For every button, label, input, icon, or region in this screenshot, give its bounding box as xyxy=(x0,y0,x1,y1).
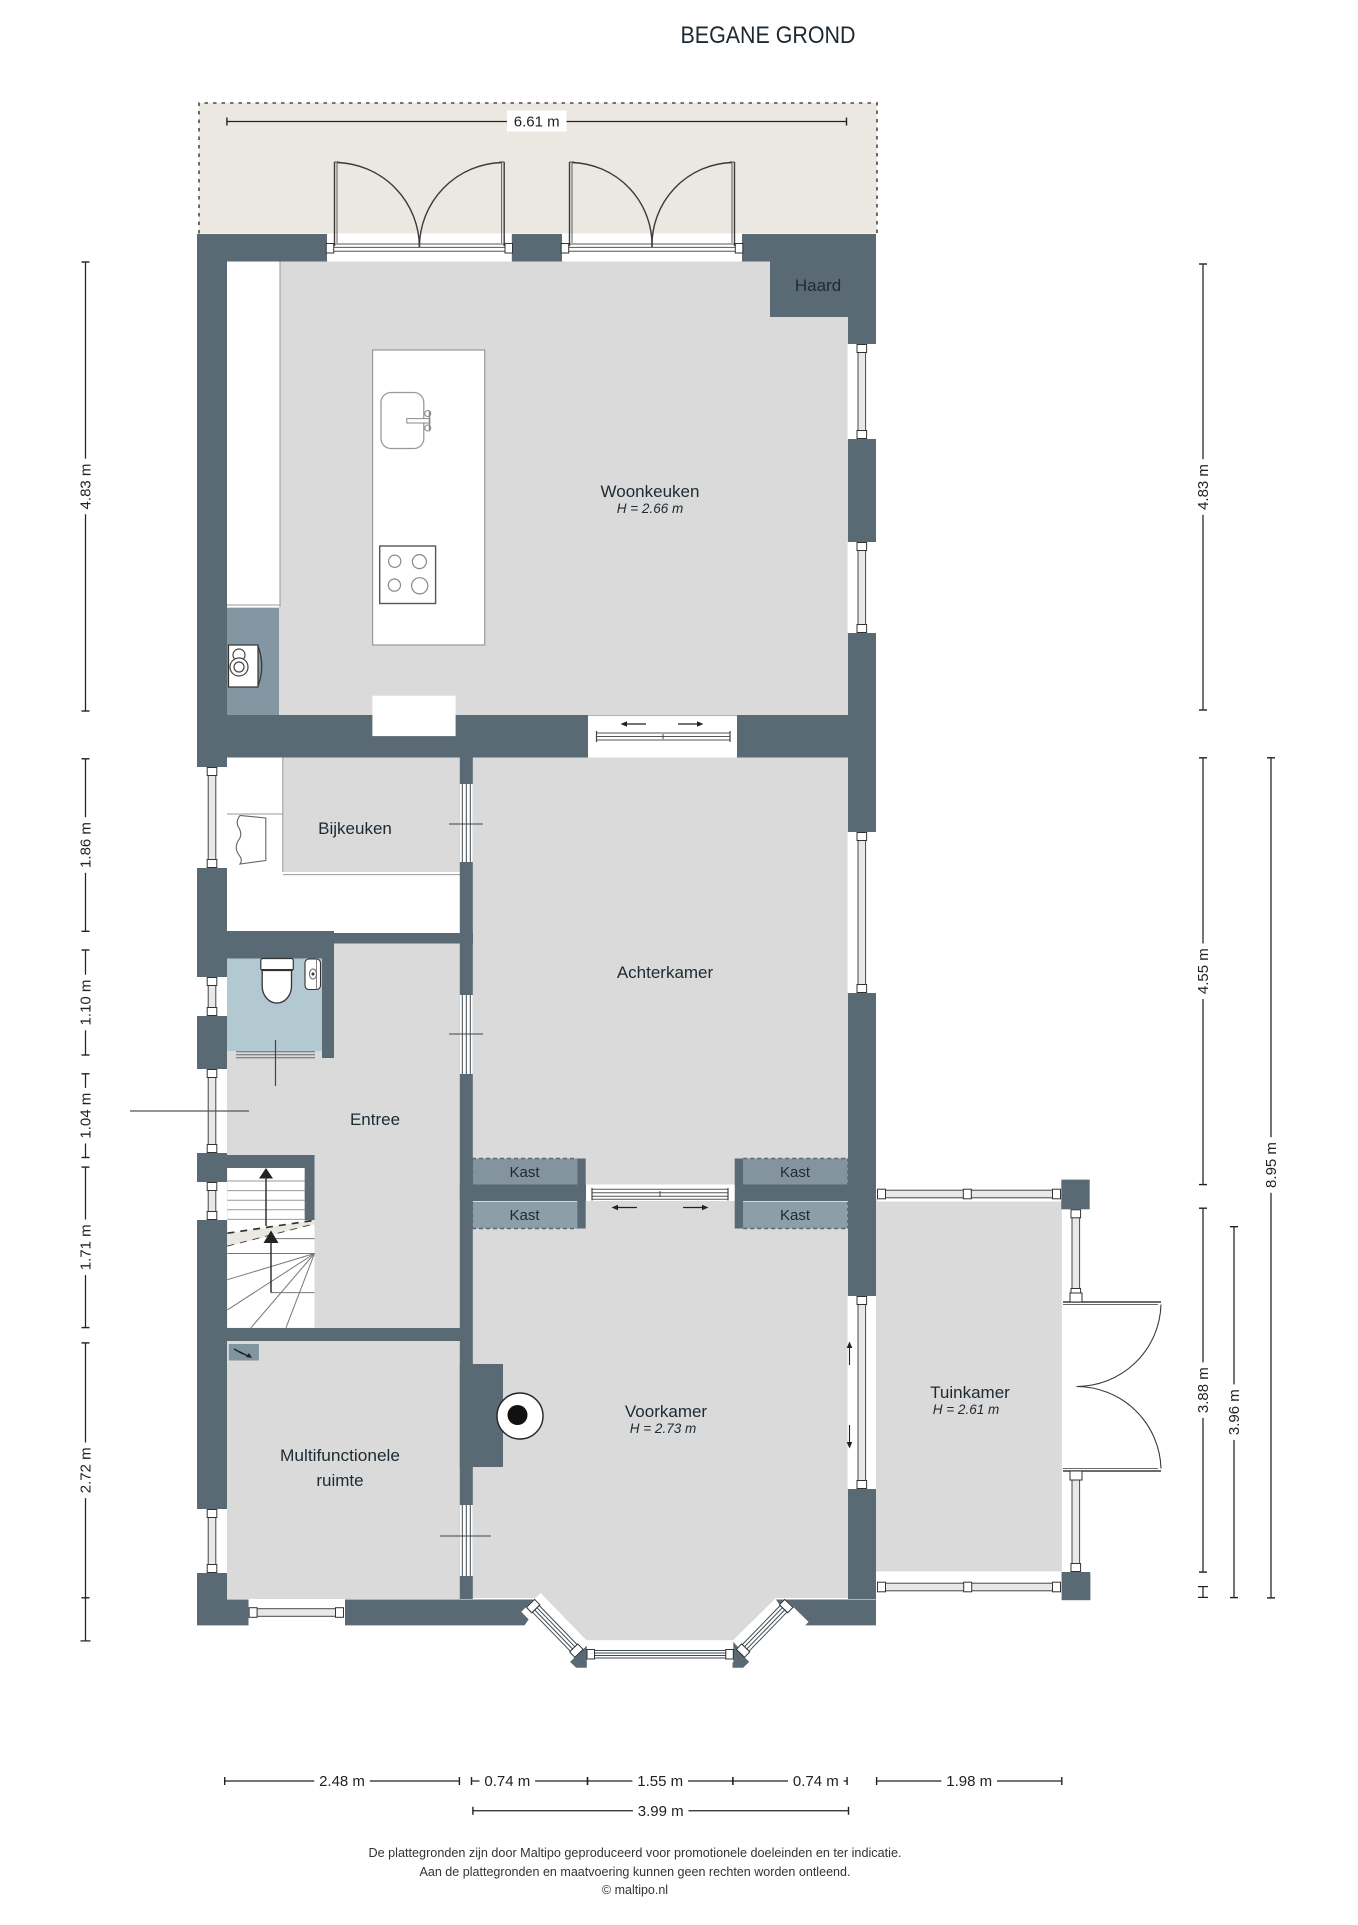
svg-text:3.99 m: 3.99 m xyxy=(638,1803,684,1820)
svg-text:0.74 m: 0.74 m xyxy=(484,1773,530,1790)
svg-text:2.72 m: 2.72 m xyxy=(78,1447,95,1493)
svg-text:3.96 m: 3.96 m xyxy=(1226,1389,1243,1435)
svg-text:4.83 m: 4.83 m xyxy=(78,464,95,510)
svg-text:H = 2.61 m: H = 2.61 m xyxy=(933,1402,999,1417)
svg-text:1.04 m: 1.04 m xyxy=(78,1093,95,1139)
svg-text:Achterkamer: Achterkamer xyxy=(617,963,714,982)
svg-text:De plattegronden zijn door Mal: De plattegronden zijn door Maltipo gepro… xyxy=(369,1846,902,1860)
svg-text:Multifunctionele: Multifunctionele xyxy=(280,1446,400,1465)
svg-text:Aan de plattegronden en maatvo: Aan de plattegronden en maatvoering kunn… xyxy=(420,1865,851,1879)
svg-text:H = 2.73 m: H = 2.73 m xyxy=(630,1421,696,1436)
svg-text:4.83 m: 4.83 m xyxy=(1195,464,1212,510)
svg-text:Kast: Kast xyxy=(780,1164,811,1181)
svg-text:Kast: Kast xyxy=(509,1207,540,1224)
svg-text:1.86 m: 1.86 m xyxy=(78,822,95,868)
svg-text:Kast: Kast xyxy=(780,1207,811,1224)
svg-text:8.95 m: 8.95 m xyxy=(1263,1142,1280,1188)
svg-text:Woonkeuken: Woonkeuken xyxy=(601,482,700,501)
svg-text:BEGANE GROND: BEGANE GROND xyxy=(681,22,856,49)
svg-text:1.55 m: 1.55 m xyxy=(637,1773,683,1790)
svg-text:Bijkeuken: Bijkeuken xyxy=(318,819,392,838)
svg-text:Kast: Kast xyxy=(509,1164,540,1181)
svg-text:Tuinkamer: Tuinkamer xyxy=(930,1383,1010,1402)
svg-text:1.98 m: 1.98 m xyxy=(946,1773,992,1790)
svg-text:© maltipo.nl: © maltipo.nl xyxy=(602,1883,668,1897)
svg-text:Entree: Entree xyxy=(350,1110,400,1129)
svg-text:0.74 m: 0.74 m xyxy=(793,1773,839,1790)
svg-text:6.61 m: 6.61 m xyxy=(514,114,560,131)
svg-text:Haard: Haard xyxy=(795,276,841,295)
svg-text:H = 2.66 m: H = 2.66 m xyxy=(617,501,683,516)
svg-text:4.55 m: 4.55 m xyxy=(1195,948,1212,994)
svg-text:1.10 m: 1.10 m xyxy=(78,980,95,1026)
svg-text:1.71 m: 1.71 m xyxy=(78,1224,95,1270)
svg-text:2.48 m: 2.48 m xyxy=(319,1773,365,1790)
svg-text:Voorkamer: Voorkamer xyxy=(625,1402,708,1421)
svg-text:3.88 m: 3.88 m xyxy=(1195,1367,1212,1413)
svg-text:ruimte: ruimte xyxy=(316,1471,363,1490)
